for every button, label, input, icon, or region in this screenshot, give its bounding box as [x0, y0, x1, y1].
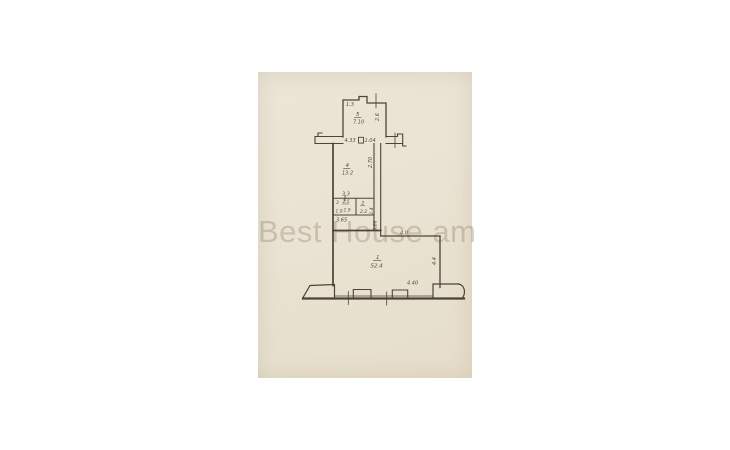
pier-right-curl — [459, 284, 465, 298]
room3-number: 3 — [336, 200, 339, 206]
room1-area: 52.4 — [371, 264, 384, 270]
walls — [303, 94, 465, 306]
room2-area: 2.2 — [360, 209, 367, 215]
room4-area: 13.2 — [342, 171, 353, 177]
dim-4-0: 4.0 — [400, 231, 408, 237]
dim-0-66: 0.66 — [373, 220, 379, 230]
dim-1-04: 1.04 — [365, 138, 376, 144]
dim-1-3: 1.3 — [346, 102, 354, 108]
pier-left — [303, 285, 335, 299]
dim-1-4: 1.4 — [369, 207, 375, 214]
dim-2-6: 2.6 — [375, 113, 381, 121]
room4-number: 4 — [346, 163, 350, 169]
dim-1-9: 1.9 — [344, 208, 351, 214]
pier-middle-1 — [353, 290, 371, 299]
floor-plan-drawing: 1.3 5 7.10 2.6 4.33 1.04 4 13.2 2.70 3.3… — [258, 72, 472, 378]
dim-4-40: 4.40 — [407, 281, 418, 287]
door-symbol — [359, 137, 364, 143]
dim-4-4: 4.4 — [432, 257, 438, 265]
room1-number: 1 — [376, 255, 380, 261]
dim-1-0: 1.0 — [336, 209, 343, 215]
band-right-wing — [386, 134, 406, 146]
dim-4-33: 4.33 — [345, 138, 356, 144]
paper-sheet: Best House am — [258, 72, 472, 378]
room5-number: 5 — [356, 112, 360, 118]
pier-right — [433, 284, 459, 298]
scanned-floor-plan-page: Best House am — [0, 0, 730, 450]
band-left-wing — [315, 133, 343, 144]
dim-3-65: 3.65 — [336, 218, 347, 224]
room5-area: 7.10 — [353, 120, 364, 126]
dim-2-70: 2.70 — [368, 157, 374, 168]
dim-3-3: 3.3 — [342, 192, 350, 198]
pier-middle-2 — [392, 290, 407, 298]
